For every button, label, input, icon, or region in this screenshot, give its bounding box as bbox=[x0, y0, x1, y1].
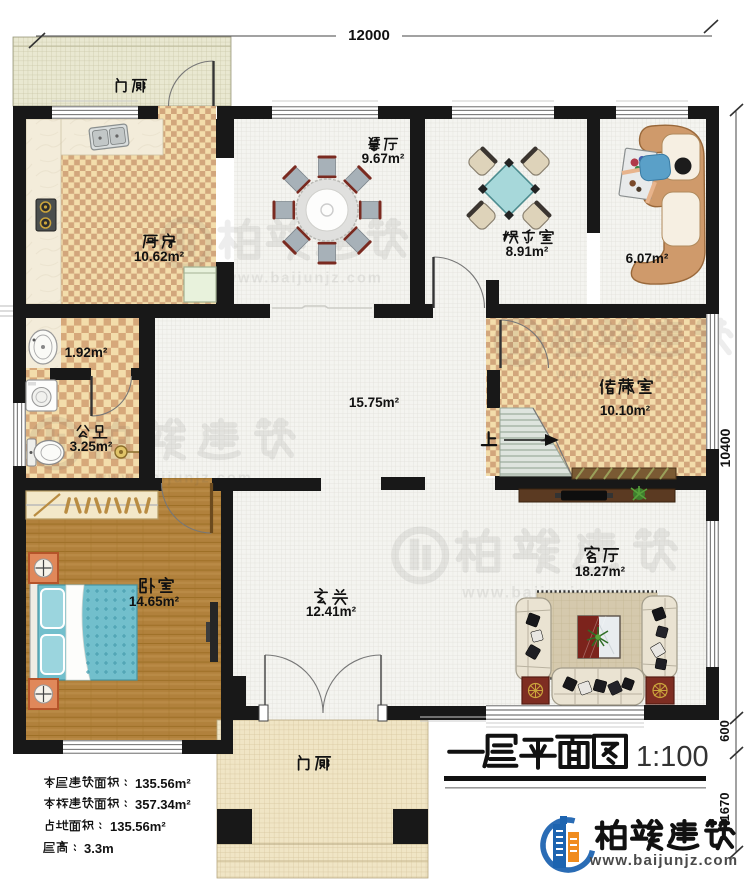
svg-text:12.41m²: 12.41m² bbox=[306, 604, 357, 619]
svg-text:10.62m²: 10.62m² bbox=[134, 249, 185, 264]
svg-text:3.25m²: 3.25m² bbox=[70, 439, 113, 454]
svg-text:14.65m²: 14.65m² bbox=[129, 594, 180, 609]
svg-text:1670: 1670 bbox=[717, 793, 732, 822]
svg-text:1.92m²: 1.92m² bbox=[65, 345, 108, 360]
svg-text:135.56m²: 135.56m² bbox=[135, 776, 191, 791]
svg-text:1:100: 1:100 bbox=[636, 741, 709, 773]
svg-text:www.baijunjz.com: www.baijunjz.com bbox=[224, 271, 383, 287]
svg-text:10400: 10400 bbox=[717, 428, 733, 467]
svg-text:www.baijunjz.com: www.baijunjz.com bbox=[589, 852, 739, 869]
svg-text:15.75m²: 15.75m² bbox=[349, 395, 400, 410]
svg-text:8.91m²: 8.91m² bbox=[506, 244, 549, 259]
svg-text:18.27m²: 18.27m² bbox=[575, 564, 626, 579]
svg-text:600: 600 bbox=[717, 720, 732, 742]
svg-text:12000: 12000 bbox=[348, 27, 390, 44]
svg-text:135.56m²: 135.56m² bbox=[110, 819, 166, 834]
svg-text:10.10m²: 10.10m² bbox=[600, 403, 651, 418]
svg-text:3.3m: 3.3m bbox=[84, 841, 114, 856]
svg-text:6.07m²: 6.07m² bbox=[626, 251, 669, 266]
svg-text:357.34m²: 357.34m² bbox=[135, 797, 191, 812]
svg-text:9.67m²: 9.67m² bbox=[362, 151, 405, 166]
